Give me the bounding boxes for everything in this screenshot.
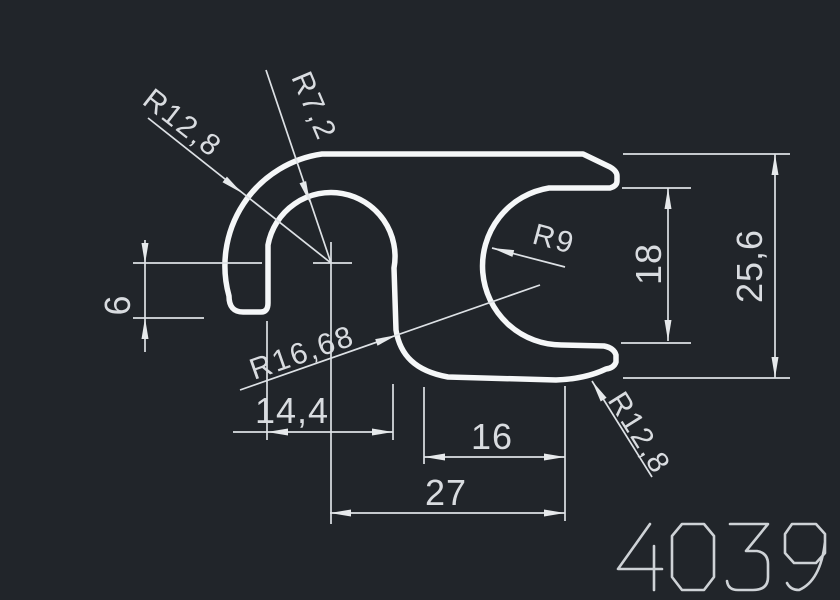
part-number-glyph-4	[618, 524, 662, 590]
part-number-glyph-9	[785, 524, 825, 590]
dim-value-14-4: 14,4	[255, 390, 329, 431]
arrowhead	[592, 381, 607, 402]
arrowhead	[544, 510, 565, 517]
arrowhead	[492, 248, 514, 257]
extension-lines	[133, 154, 790, 524]
dim-value-18: 18	[628, 243, 669, 285]
dim-value-6: 6	[97, 294, 138, 315]
arrowhead	[665, 320, 672, 341]
radius-label-r12-8-top: R12,8	[137, 83, 228, 164]
part-number: 4039	[618, 524, 825, 590]
arrowhead	[142, 318, 149, 339]
arrowhead	[375, 335, 397, 346]
arrowhead	[142, 243, 149, 264]
cad-drawing: 6 14,4 16 27 18 25,6 R12,8 R7,2 R9 R16,6…	[0, 0, 840, 600]
radius-label-r7-2: R7,2	[285, 67, 343, 146]
arrowhead	[665, 188, 672, 209]
arrowhead	[223, 177, 243, 193]
arrowhead	[544, 454, 565, 461]
part-number-glyph-0	[672, 524, 714, 590]
arrowhead	[772, 154, 779, 175]
dimension-lines	[142, 154, 779, 517]
dim-value-25-6: 25,6	[729, 229, 770, 303]
arrowhead	[424, 454, 445, 461]
dimension-text: 6 14,4 16 27 18 25,6 R12,8 R7,2 R9 R16,6…	[97, 67, 770, 513]
arrowhead	[772, 357, 779, 378]
dim-value-16: 16	[471, 416, 513, 457]
radius-label-r9: R9	[529, 218, 578, 261]
arrowhead	[372, 429, 393, 436]
radius-label-r16-68: R16,68	[245, 320, 359, 387]
cad-drawing-canvas: 6 14,4 16 27 18 25,6 R12,8 R7,2 R9 R16,6…	[0, 0, 840, 600]
radius-label-r12-8-bottom: R12,8	[601, 386, 677, 480]
arrowhead	[330, 510, 351, 517]
dim-value-27: 27	[425, 472, 467, 513]
